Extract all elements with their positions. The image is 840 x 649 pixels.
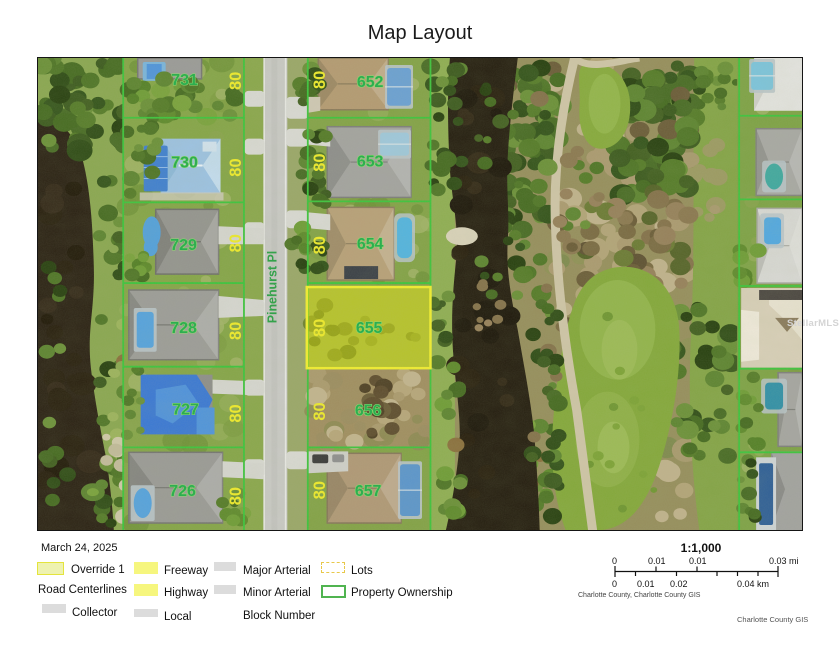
svg-text:0.03 mi: 0.03 mi: [769, 556, 799, 566]
svg-text:0: 0: [612, 556, 617, 566]
svg-text:0.04 km: 0.04 km: [737, 579, 769, 589]
svg-text:0.02: 0.02: [670, 579, 688, 589]
svg-text:0.01: 0.01: [637, 579, 655, 589]
svg-text:0.01: 0.01: [648, 556, 666, 566]
svg-text:0: 0: [612, 579, 617, 589]
svg-text:0.01: 0.01: [689, 556, 707, 566]
